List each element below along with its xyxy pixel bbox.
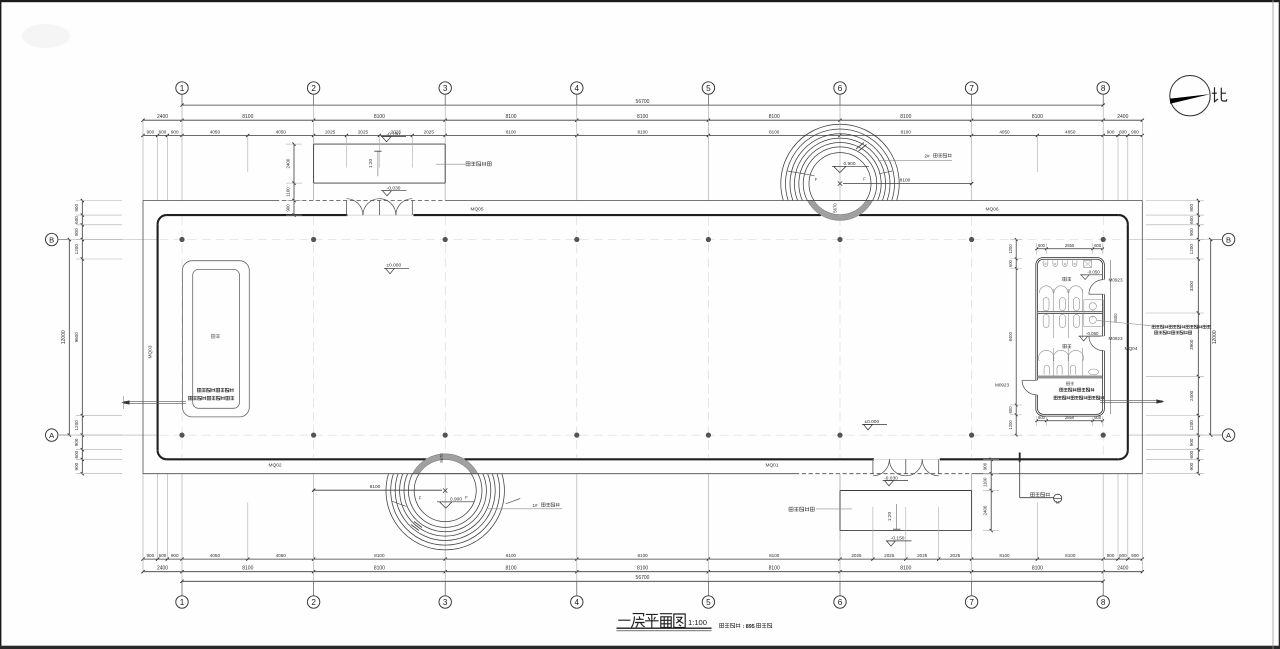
- svg-text:1:20: 1:20: [368, 159, 374, 169]
- svg-text:600: 600: [1008, 259, 1013, 267]
- svg-text:0.900: 0.900: [450, 496, 462, 502]
- svg-text:900: 900: [146, 129, 154, 134]
- svg-text:900: 900: [1107, 553, 1115, 558]
- svg-text:7: 7: [969, 598, 974, 607]
- svg-text:: 895: : 895: [743, 624, 755, 630]
- svg-text:2: 2: [311, 84, 316, 93]
- svg-text:2400: 2400: [286, 158, 291, 168]
- svg-text:600: 600: [1038, 415, 1046, 420]
- svg-text:M0923: M0923: [1109, 336, 1123, 341]
- svg-text:3900: 3900: [1189, 339, 1194, 350]
- svg-text:4050: 4050: [210, 129, 221, 134]
- svg-text:8400: 8400: [1008, 331, 1013, 341]
- svg-text:5670: 5670: [439, 453, 444, 463]
- svg-text:F: F: [863, 177, 866, 182]
- svg-text:-0.150: -0.150: [387, 131, 401, 137]
- svg-text:900: 900: [74, 462, 79, 470]
- svg-text:900: 900: [983, 462, 988, 470]
- svg-text:8100: 8100: [999, 553, 1010, 558]
- svg-text:56700: 56700: [636, 575, 650, 581]
- svg-text:1200: 1200: [1008, 420, 1013, 430]
- svg-text:600: 600: [1189, 450, 1194, 458]
- svg-text:6: 6: [838, 84, 843, 93]
- svg-text:8100: 8100: [1065, 553, 1076, 558]
- svg-text:2025: 2025: [325, 129, 336, 134]
- svg-text:600: 600: [1189, 216, 1194, 224]
- svg-text:900: 900: [74, 438, 79, 446]
- svg-text:3: 3: [443, 598, 448, 607]
- svg-text:12000: 12000: [61, 330, 67, 344]
- svg-text:900: 900: [1131, 553, 1139, 558]
- svg-text:8100: 8100: [637, 566, 648, 572]
- svg-text:1200: 1200: [1189, 244, 1194, 255]
- svg-text:2850: 2850: [1065, 243, 1075, 248]
- svg-text:8100: 8100: [1032, 566, 1043, 572]
- svg-text:4050: 4050: [1065, 129, 1076, 134]
- svg-text:2#: 2#: [925, 154, 931, 159]
- svg-text:M0923: M0923: [1109, 278, 1123, 283]
- svg-text:MQ02: MQ02: [268, 463, 281, 469]
- svg-text:2025: 2025: [358, 129, 369, 134]
- svg-text:900: 900: [171, 129, 179, 134]
- svg-text:900: 900: [171, 553, 179, 558]
- svg-text:2025: 2025: [884, 553, 895, 558]
- svg-text:3300: 3300: [1189, 280, 1194, 291]
- svg-text:900: 900: [74, 204, 79, 212]
- svg-text:1#: 1#: [533, 503, 539, 508]
- svg-text:4050: 4050: [276, 553, 287, 558]
- svg-text:2: 2: [311, 598, 316, 607]
- svg-text:2400: 2400: [157, 566, 168, 572]
- svg-text:7: 7: [969, 84, 974, 93]
- svg-text:8100: 8100: [769, 114, 780, 120]
- svg-text:8100: 8100: [505, 566, 516, 572]
- svg-text:56700: 56700: [636, 99, 650, 105]
- svg-text:8: 8: [1101, 84, 1106, 93]
- svg-text:900: 900: [74, 228, 79, 236]
- svg-text:900: 900: [1131, 129, 1139, 134]
- svg-text:1100: 1100: [286, 187, 291, 197]
- svg-text:2025: 2025: [424, 129, 435, 134]
- svg-text:8100: 8100: [769, 129, 780, 134]
- svg-text:-0.050: -0.050: [1086, 331, 1099, 336]
- svg-text:8100: 8100: [374, 566, 385, 572]
- svg-text:8100: 8100: [637, 553, 648, 558]
- svg-text:1:20: 1:20: [887, 512, 893, 522]
- svg-text:F: F: [815, 177, 818, 182]
- svg-text:900: 900: [286, 204, 291, 212]
- svg-text:8100: 8100: [1032, 114, 1043, 120]
- svg-text:8100: 8100: [242, 114, 253, 120]
- svg-text:4050: 4050: [999, 129, 1010, 134]
- svg-text:8100: 8100: [505, 114, 516, 120]
- svg-text:9600: 9600: [74, 332, 79, 343]
- svg-text:-0.030: -0.030: [387, 185, 401, 191]
- svg-text:-0.050: -0.050: [1087, 269, 1100, 274]
- svg-text:4: 4: [575, 84, 580, 93]
- svg-text:1200: 1200: [74, 244, 79, 255]
- svg-text:8: 8: [1101, 598, 1106, 607]
- svg-text:1200: 1200: [1008, 244, 1013, 254]
- svg-text:2400: 2400: [1189, 390, 1194, 401]
- svg-text:1100: 1100: [983, 477, 988, 487]
- svg-text:2400: 2400: [983, 505, 988, 515]
- svg-text:2400: 2400: [1117, 566, 1128, 572]
- svg-text:2025: 2025: [851, 553, 862, 558]
- svg-text:1200: 1200: [1189, 420, 1194, 431]
- svg-text:1: 1: [180, 598, 185, 607]
- svg-text:5: 5: [706, 598, 711, 607]
- svg-text:4050: 4050: [276, 129, 287, 134]
- svg-text:600: 600: [74, 450, 79, 458]
- svg-text:3: 3: [443, 84, 448, 93]
- svg-text:600: 600: [159, 553, 167, 558]
- svg-text:±0.000: ±0.000: [865, 419, 880, 425]
- svg-text:F: F: [465, 495, 468, 500]
- svg-text:600: 600: [1038, 243, 1046, 248]
- svg-text:2400: 2400: [157, 114, 168, 120]
- svg-text:8100: 8100: [637, 129, 648, 134]
- svg-text:-0.030: -0.030: [884, 475, 898, 481]
- svg-text:MQ01: MQ01: [765, 463, 778, 469]
- svg-text:8100: 8100: [370, 484, 381, 490]
- svg-text:600: 600: [159, 129, 167, 134]
- svg-text:B: B: [1226, 235, 1231, 244]
- svg-text:5670: 5670: [833, 203, 838, 213]
- svg-text:5: 5: [706, 84, 711, 93]
- svg-text:8100: 8100: [900, 114, 911, 120]
- svg-text:8100: 8100: [374, 553, 385, 558]
- svg-text:600: 600: [1119, 129, 1127, 134]
- svg-text:900: 900: [1189, 204, 1194, 212]
- svg-text:8100: 8100: [506, 129, 517, 134]
- svg-text:2400: 2400: [1117, 114, 1128, 120]
- svg-text:600: 600: [1008, 406, 1013, 414]
- svg-text:-0.150: -0.150: [891, 536, 905, 542]
- svg-text:12000: 12000: [1212, 330, 1218, 344]
- svg-text:B: B: [49, 235, 54, 244]
- svg-text:600: 600: [74, 216, 79, 224]
- svg-text:900: 900: [1189, 462, 1194, 470]
- svg-text:900: 900: [1107, 129, 1115, 134]
- svg-text:2025: 2025: [917, 553, 928, 558]
- svg-text:1200: 1200: [74, 420, 79, 431]
- svg-text:±0.000: ±0.000: [387, 263, 402, 269]
- svg-text:8100: 8100: [901, 129, 912, 134]
- svg-text:MQ05: MQ05: [470, 207, 483, 213]
- svg-text:1:100: 1:100: [688, 618, 707, 627]
- svg-text:0.900: 0.900: [844, 161, 856, 167]
- svg-text:2025: 2025: [950, 553, 961, 558]
- svg-text:MQ06: MQ06: [985, 207, 998, 213]
- svg-text:900: 900: [1189, 438, 1194, 446]
- svg-text:8100: 8100: [374, 114, 385, 120]
- svg-text:F: F: [419, 495, 422, 500]
- svg-text:MQ04: MQ04: [1124, 346, 1137, 352]
- svg-text:2850: 2850: [1065, 415, 1075, 420]
- svg-text:4: 4: [575, 598, 580, 607]
- svg-text:M0923: M0923: [995, 382, 1009, 387]
- svg-text:8100: 8100: [900, 177, 911, 183]
- svg-text:8100: 8100: [242, 566, 253, 572]
- svg-text:900: 900: [146, 553, 154, 558]
- svg-text:11: 11: [1056, 500, 1060, 504]
- svg-text:8400: 8400: [1113, 313, 1118, 323]
- svg-text:4050: 4050: [210, 553, 221, 558]
- svg-text:8100: 8100: [900, 566, 911, 572]
- svg-text:8100: 8100: [769, 553, 780, 558]
- svg-text:1: 1: [180, 84, 185, 93]
- svg-text:8100: 8100: [506, 553, 517, 558]
- svg-text:MQ03: MQ03: [148, 345, 154, 358]
- svg-text:600: 600: [1119, 553, 1127, 558]
- svg-text:900: 900: [1189, 228, 1194, 236]
- svg-text:8100: 8100: [637, 114, 648, 120]
- svg-text:600: 600: [1094, 243, 1102, 248]
- svg-text:8100: 8100: [769, 566, 780, 572]
- svg-text:600: 600: [1094, 415, 1102, 420]
- svg-text:6: 6: [838, 598, 843, 607]
